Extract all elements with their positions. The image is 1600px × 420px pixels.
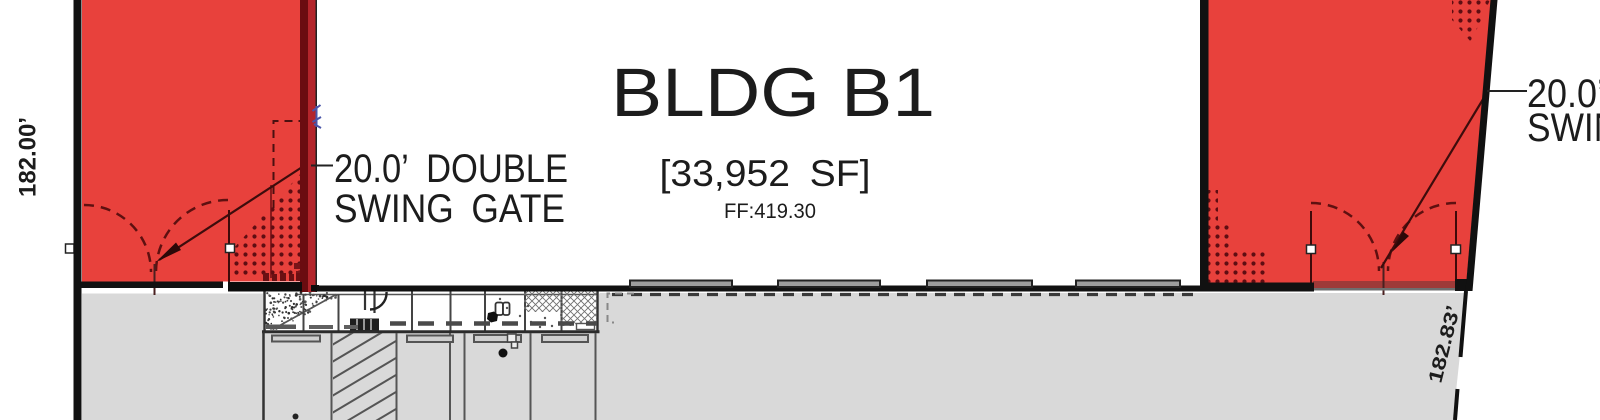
- svg-text:FF:419.30: FF:419.30: [724, 200, 816, 223]
- svg-text:182.00’: 182.00’: [15, 117, 42, 197]
- svg-text:SWING GATE: SWING GATE: [334, 187, 565, 231]
- svg-text:20.0’ DOUBLE: 20.0’ DOUBLE: [334, 147, 568, 191]
- svg-text:SWING GATE: SWING GATE: [1527, 106, 1600, 150]
- svg-text:[33,952 SF]: [33,952 SF]: [660, 153, 871, 194]
- svg-text:BLDG B1: BLDG B1: [611, 54, 935, 131]
